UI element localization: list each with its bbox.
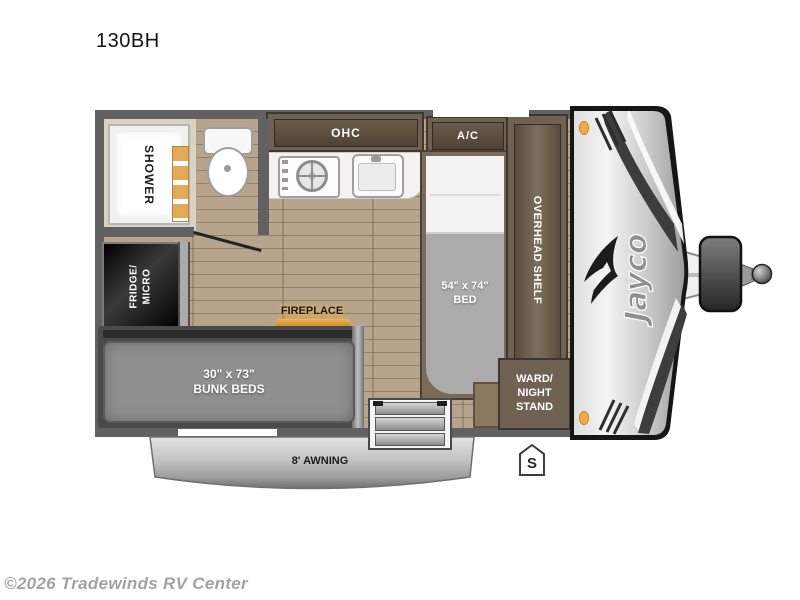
copyright-text: ©2026 Tradewinds RV Center (4, 574, 248, 594)
faucet-icon (371, 156, 381, 162)
bed-pillow (426, 156, 504, 234)
shower-label: SHOWER (142, 145, 156, 205)
awning-label: 8' AWNING (265, 455, 375, 467)
bunk-top-rail (103, 330, 355, 338)
wardrobe-label: WARD/ NIGHT STAND (516, 373, 553, 414)
front-cap: Jayco (560, 98, 790, 450)
window-top (433, 109, 529, 117)
shower-door (172, 146, 189, 222)
jayco-logo-text: Jayco (619, 234, 654, 327)
marker-light-top (580, 122, 589, 135)
step (375, 417, 445, 430)
step (375, 433, 445, 446)
bed-label: 54" x 74" BED (426, 280, 504, 308)
fridge-micro-label: FRIDGE/ MICRO (129, 264, 154, 308)
ohc-label: OHC (331, 126, 361, 140)
bathroom-wall (95, 227, 194, 237)
ac-label: A/C (457, 130, 479, 142)
bunk-beds-label: 30" x 73" BUNK BEDS (193, 367, 264, 397)
stove-knobs (282, 160, 288, 190)
fridge-side-panel (178, 242, 190, 326)
floorplan-canvas: 130BH SHOWER FRIDGE/ MICRO OHC A/C 54" x… (0, 0, 800, 600)
ac-panel: A/C (432, 122, 504, 150)
s-marker-letter: S (527, 455, 537, 472)
toilet-bowl (207, 147, 249, 197)
bed-mattress: 54" x 74" BED (426, 156, 504, 394)
sink-basin (358, 163, 396, 191)
overhead-shelf-panel: OVERHEAD SHELF (514, 124, 561, 376)
hitch-ball (753, 265, 772, 284)
entry-steps (368, 398, 452, 450)
overhead-shelf-label: OVERHEAD SHELF (532, 196, 544, 304)
fireplace-label: FIREPLACE (262, 305, 362, 317)
s-marker: S (519, 444, 545, 476)
page-title: 130BH (96, 30, 160, 53)
partition-wall (258, 119, 269, 235)
marker-light-bottom (580, 412, 589, 425)
step (375, 402, 445, 415)
overhead-cabinet-panel: OHC (274, 119, 418, 147)
bunk-mattress: 30" x 73" BUNK BEDS (103, 341, 355, 423)
propane-cover (700, 237, 741, 311)
fridge-micro-cabinet: FRIDGE/ MICRO (102, 242, 180, 330)
stove-burner-icon (296, 160, 328, 192)
